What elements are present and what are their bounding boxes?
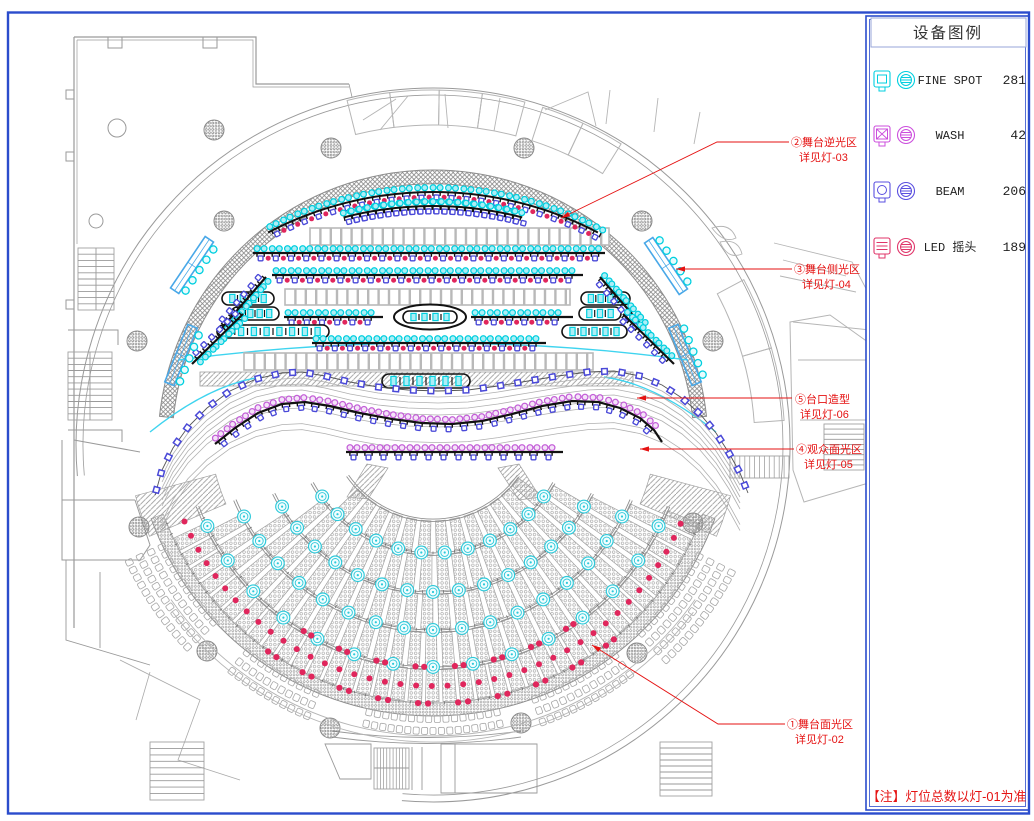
svg-text:详见灯-03: 详见灯-03 <box>799 150 848 164</box>
svg-text:206: 206 <box>1003 184 1026 199</box>
svg-text:189: 189 <box>1003 240 1026 255</box>
svg-text:②舞台逆光区: ②舞台逆光区 <box>791 135 857 149</box>
svg-text:设备图例: 设备图例 <box>913 24 983 42</box>
svg-text:详见灯-06: 详见灯-06 <box>800 407 849 421</box>
svg-text:详见灯-04: 详见灯-04 <box>802 277 851 291</box>
svg-text:详见灯-05: 详见灯-05 <box>804 457 853 471</box>
svg-text:WASH: WASH <box>936 129 965 143</box>
svg-text:详见灯-02: 详见灯-02 <box>795 732 844 746</box>
svg-text:【注】灯位总数以灯-01为准: 【注】灯位总数以灯-01为准 <box>867 789 1026 804</box>
svg-text:LED 摇头: LED 摇头 <box>924 240 977 255</box>
svg-text:④观众面光区: ④观众面光区 <box>796 442 862 456</box>
svg-text:281: 281 <box>1003 73 1027 88</box>
svg-text:⑤台口造型: ⑤台口造型 <box>795 392 850 406</box>
svg-text:BEAM: BEAM <box>936 185 965 199</box>
svg-text:FINE SPOT: FINE SPOT <box>918 74 983 88</box>
svg-text:42: 42 <box>1010 128 1026 143</box>
svg-text:③舞台侧光区: ③舞台侧光区 <box>794 262 860 276</box>
svg-text:①舞台面光区: ①舞台面光区 <box>787 717 853 731</box>
